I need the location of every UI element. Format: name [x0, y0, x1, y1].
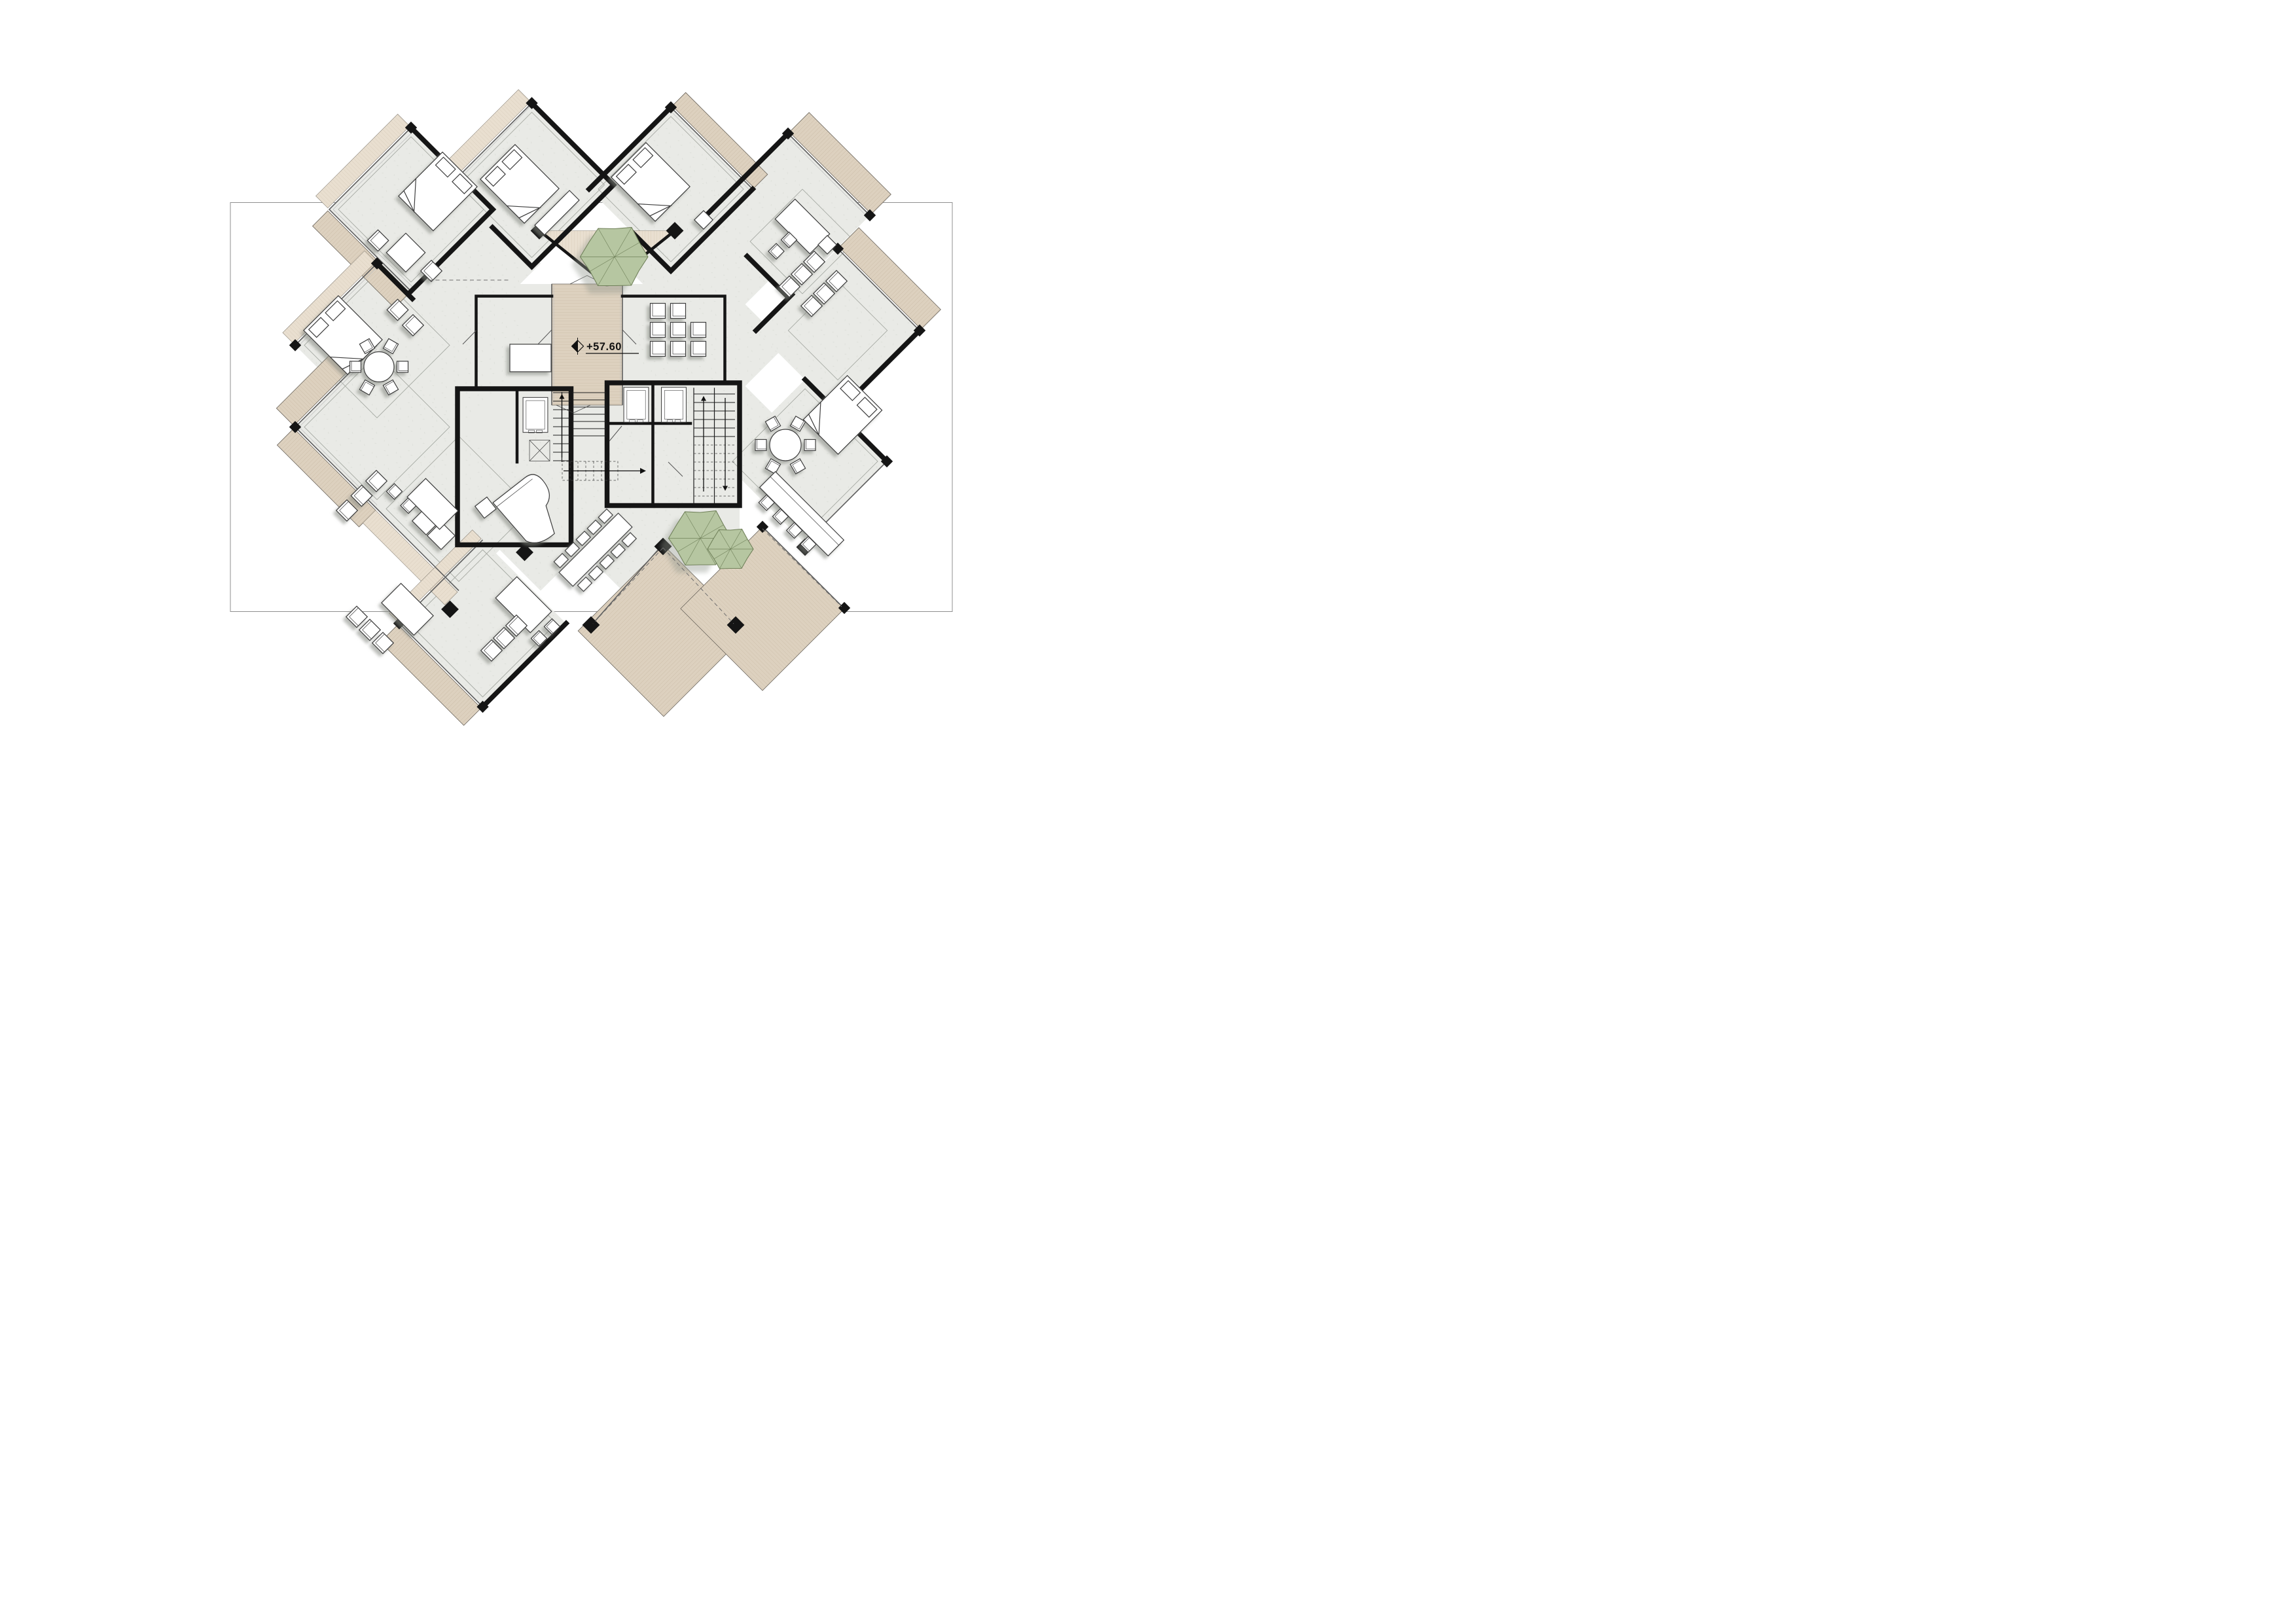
- elevation-label: +57.60: [586, 341, 622, 353]
- floor-plan-canvas: +57.60: [0, 0, 1148, 811]
- elevator-west: [523, 397, 548, 433]
- sofa-seat: [359, 619, 381, 641]
- elevator-east-2: [662, 387, 687, 423]
- desk-north-west: [510, 344, 551, 372]
- floor-plan-sheet: +57.60: [0, 0, 1148, 811]
- sofa-seat: [346, 606, 368, 628]
- elevator-east-1: [624, 387, 649, 423]
